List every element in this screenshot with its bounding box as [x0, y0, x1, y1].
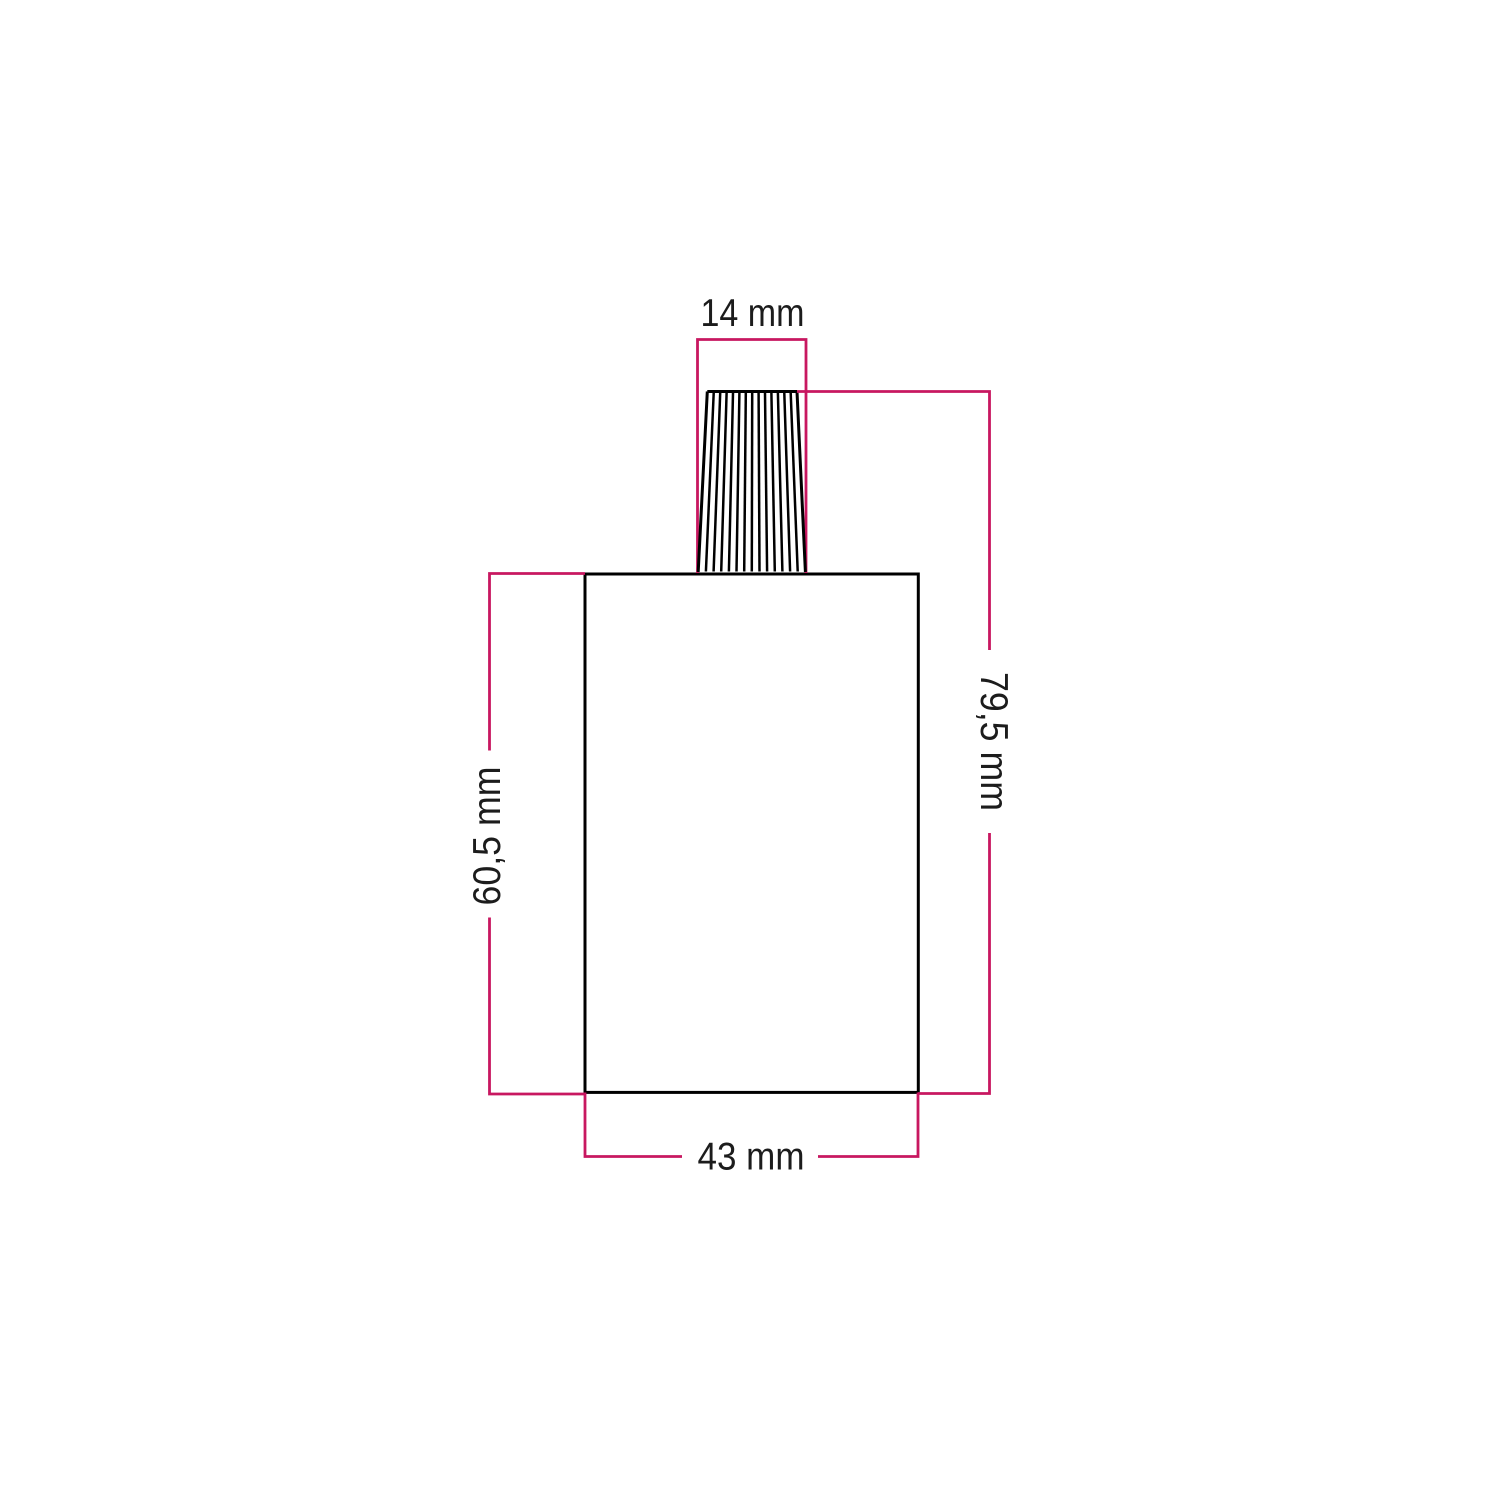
svg-text:60,5 mm: 60,5 mm [466, 767, 509, 906]
svg-text:14 mm: 14 mm [701, 292, 805, 335]
svg-text:43 mm: 43 mm [698, 1136, 805, 1179]
svg-text:79,5 mm: 79,5 mm [972, 672, 1015, 811]
